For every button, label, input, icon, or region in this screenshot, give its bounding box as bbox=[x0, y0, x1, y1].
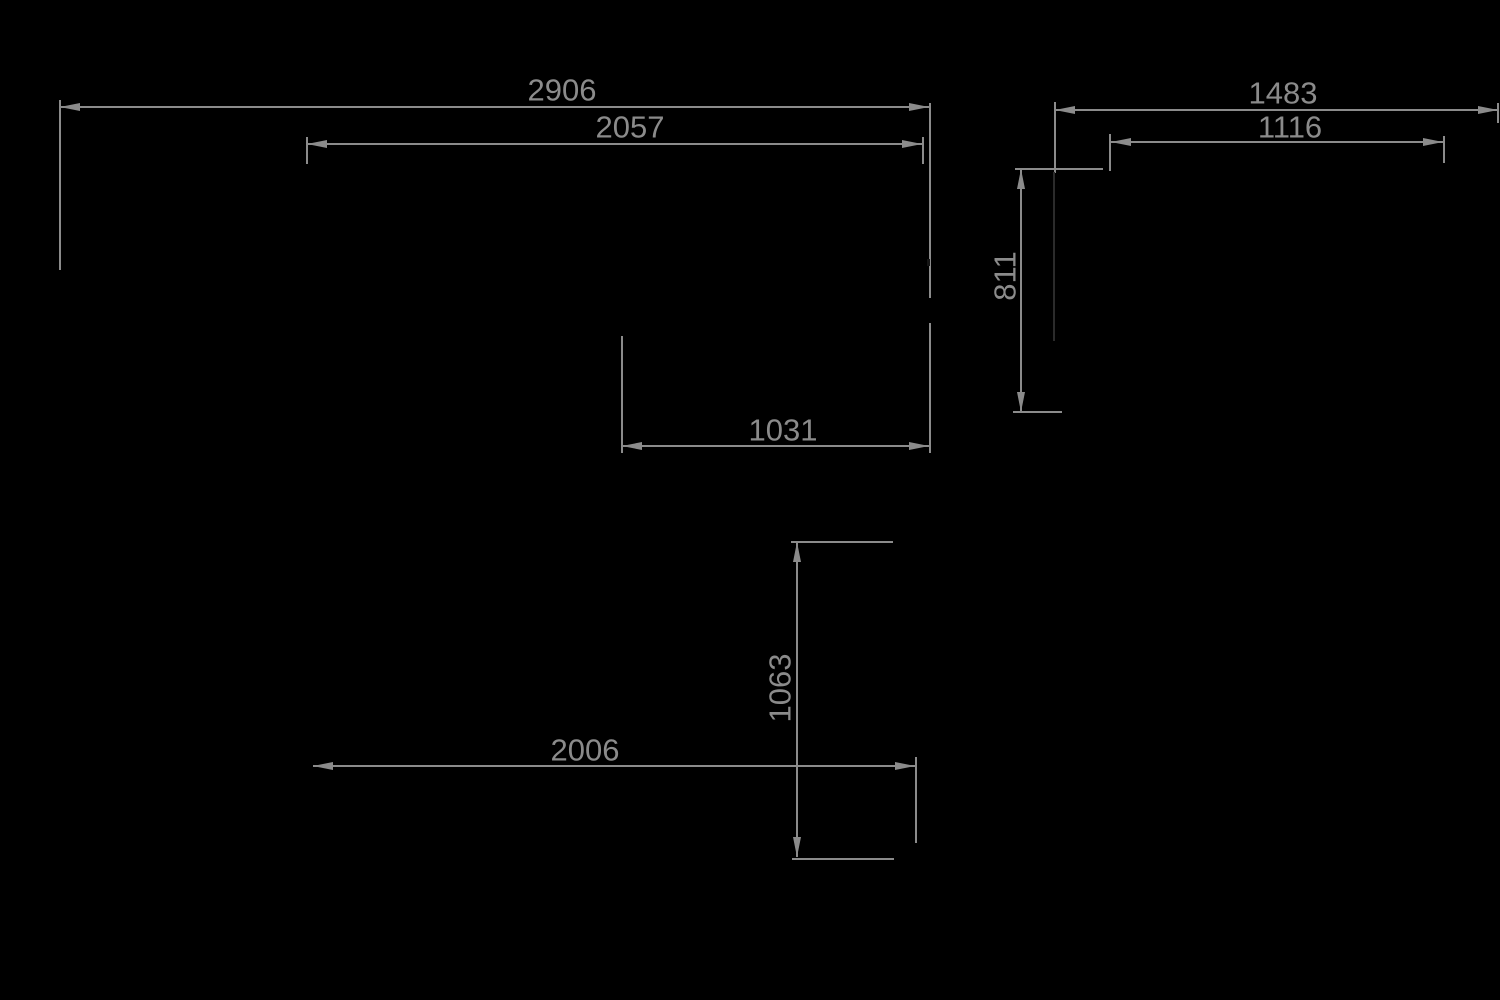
dim-line-2057-arrow-right bbox=[902, 140, 922, 148]
dim-line-2906-arrow-left bbox=[60, 103, 80, 111]
dim-line-1063-arrow-bottom bbox=[793, 837, 801, 857]
dim-line-811-arrow-bottom bbox=[1017, 392, 1025, 412]
label-1483: 1483 bbox=[1249, 76, 1318, 111]
label-2057: 2057 bbox=[596, 110, 665, 145]
dim-line-2906-arrow-right bbox=[909, 103, 929, 111]
label-1031: 1031 bbox=[749, 413, 818, 448]
label-2006: 2006 bbox=[551, 733, 620, 768]
dim-line-2006-arrow-left bbox=[313, 762, 333, 770]
label-2906: 2906 bbox=[528, 73, 597, 108]
dim-line-2006-arrow-right bbox=[895, 762, 915, 770]
dim-line-2057-arrow-left bbox=[307, 140, 327, 148]
dim-line-1483-arrow-left bbox=[1055, 106, 1075, 114]
drawing-canvas: 2906205714831116103181110632006 bbox=[0, 0, 1500, 1000]
label-811: 811 bbox=[988, 251, 1023, 300]
label-1063: 1063 bbox=[763, 654, 798, 723]
dim-line-1063-arrow-top bbox=[793, 542, 801, 562]
dimension-drawing: 2906205714831116103181110632006 bbox=[0, 0, 1500, 1000]
dim-line-1031-arrow-right bbox=[909, 442, 929, 450]
label-1116: 1116 bbox=[1258, 110, 1322, 145]
dim-line-1116-arrow-right bbox=[1423, 138, 1443, 146]
dim-line-1483-arrow-right bbox=[1478, 106, 1498, 114]
dim-line-811-arrow-top bbox=[1017, 169, 1025, 189]
notch-right-ext bbox=[927, 259, 930, 266]
dim-line-1031-arrow-left bbox=[622, 442, 642, 450]
dim-line-1116-arrow-left bbox=[1111, 138, 1131, 146]
